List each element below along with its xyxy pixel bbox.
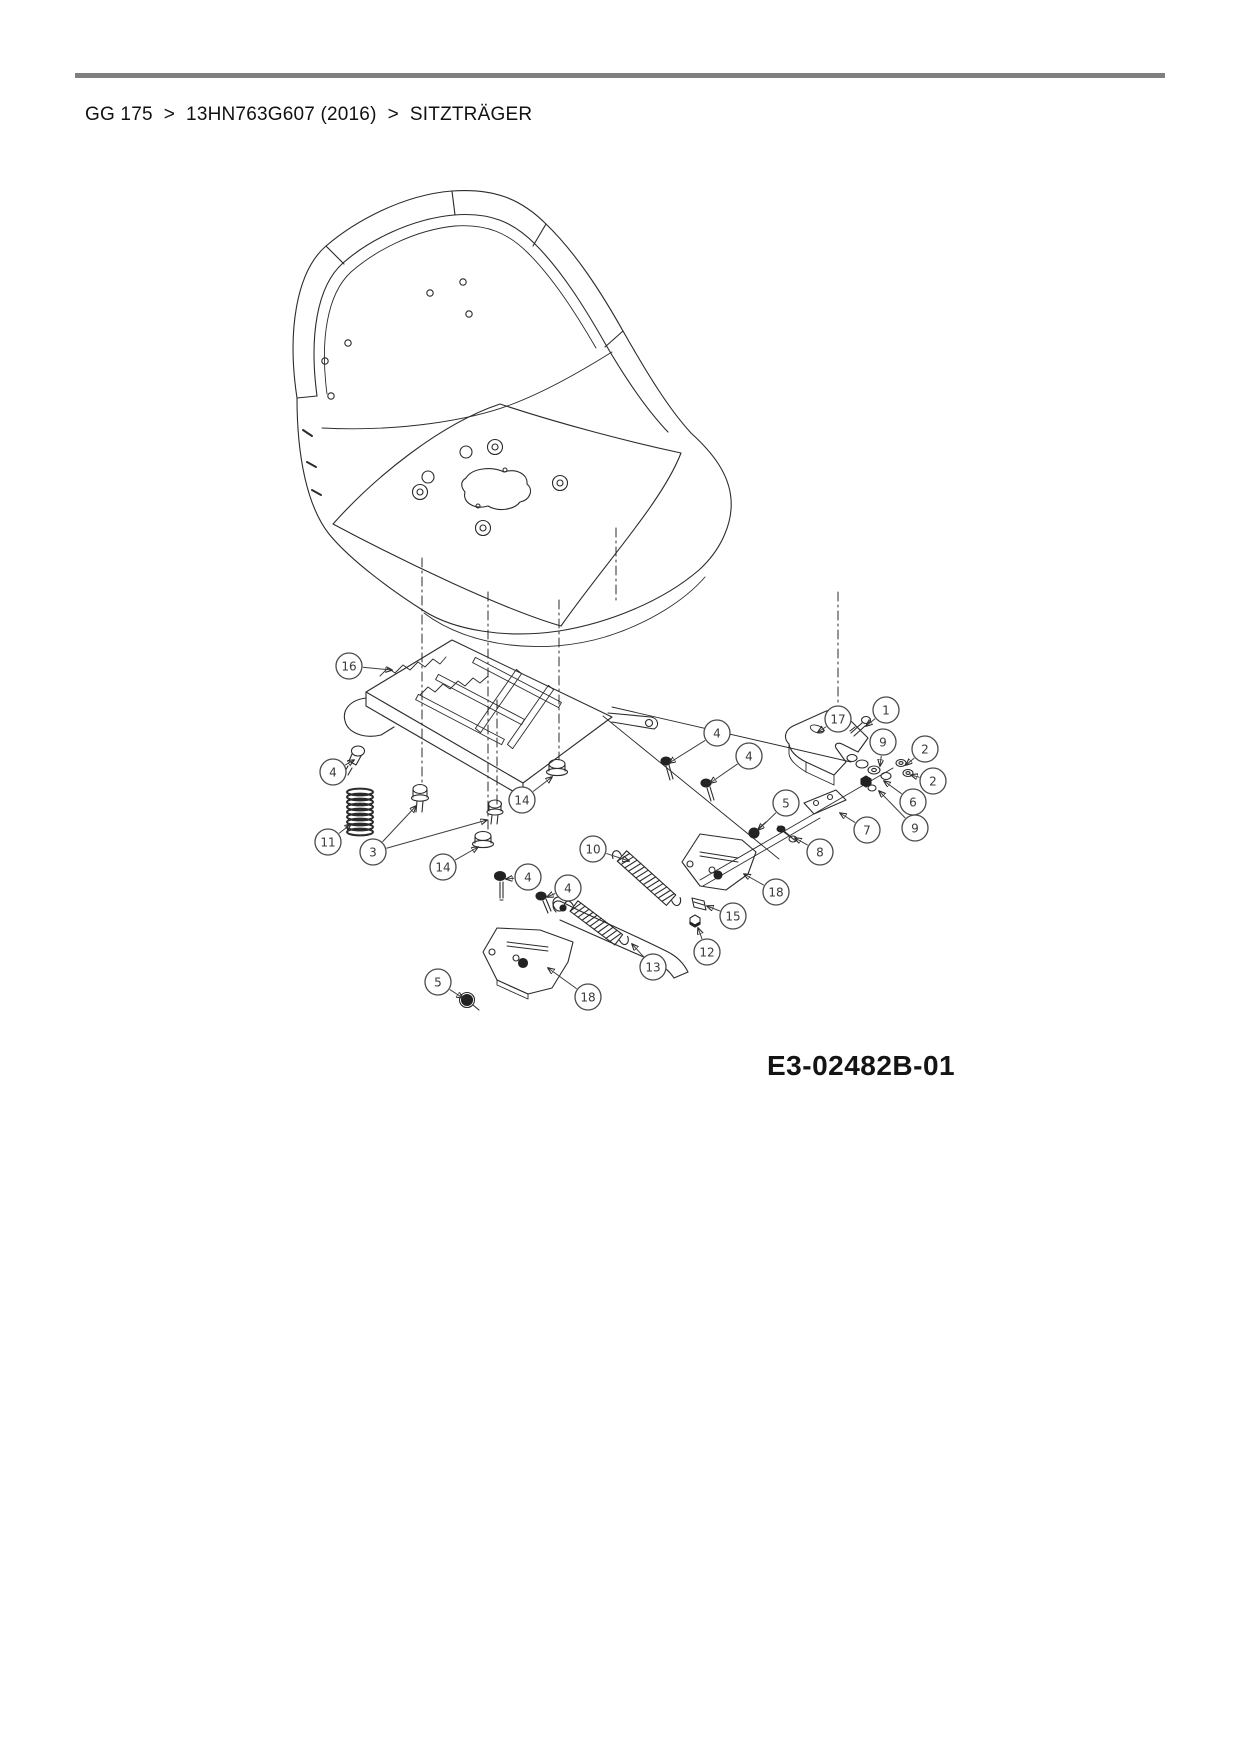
callout-5: 5	[425, 969, 463, 998]
callout-4: 4	[710, 743, 762, 783]
callout-17: 17	[818, 706, 851, 732]
callout-4: 4	[669, 720, 730, 763]
callout-14: 14	[430, 847, 478, 880]
callout-leader-line	[911, 775, 919, 777]
callout-9: 9	[870, 729, 896, 766]
callout-leader-line	[506, 878, 514, 879]
callout-number: 11	[320, 836, 335, 850]
callout-14: 14	[509, 777, 552, 813]
callout-number: 14	[435, 861, 450, 875]
callout-4: 4	[547, 875, 581, 901]
callout-number: 13	[645, 961, 660, 975]
callout-2: 2	[906, 736, 938, 765]
callout-4: 4	[320, 759, 354, 785]
callout-number: 12	[699, 946, 714, 960]
callout-leader-line	[880, 756, 881, 766]
callout-10: 10	[580, 836, 629, 862]
callout-leader-line	[818, 727, 826, 732]
callout-number: 14	[514, 794, 529, 808]
callout-leader-line	[386, 820, 487, 848]
callout-1: 1	[866, 697, 899, 726]
callout-leader-line	[884, 781, 902, 794]
callout-leader-line	[906, 758, 914, 765]
callout-number: 4	[564, 882, 572, 896]
callout-number: 10	[585, 843, 600, 857]
callout-leader-line	[758, 813, 776, 830]
callout-number: 4	[745, 750, 753, 764]
callout-12: 12	[694, 928, 720, 965]
callout-number: 18	[768, 886, 783, 900]
callout-leader-line	[795, 838, 808, 845]
callout-5: 5	[758, 790, 799, 830]
callout-number: 2	[921, 743, 929, 757]
callout-number: 4	[329, 766, 337, 780]
callout-number: 4	[524, 871, 532, 885]
callout-leader-line	[345, 760, 354, 765]
callout-4: 4	[506, 864, 541, 890]
callout-number: 18	[580, 991, 595, 1005]
callout-number: 9	[911, 822, 919, 836]
callout-number: 3	[369, 846, 377, 860]
callout-number: 17	[830, 713, 845, 727]
callout-8: 8	[795, 838, 833, 865]
callout-leader-line	[383, 806, 416, 842]
callout-18: 18	[548, 968, 601, 1010]
callout-leader-line	[363, 667, 392, 670]
callout-leader-line	[744, 874, 764, 885]
callout-16: 16	[336, 653, 392, 679]
callout-leader-line	[548, 968, 577, 989]
callout-leader-line	[455, 847, 478, 860]
callout-number: 1	[882, 704, 890, 718]
callout-number: 8	[816, 846, 824, 860]
callout-leader-line	[450, 990, 463, 998]
callout-number: 9	[879, 736, 887, 750]
callout-leader-line	[710, 764, 737, 783]
callout-leader-line	[606, 853, 629, 861]
parts-catalog-page: GG 175>13HN763G607 (2016)>SITZTRÄGER	[0, 0, 1240, 1754]
callout-number: 4	[713, 727, 721, 741]
callout-number: 16	[341, 660, 356, 674]
drawing-number-label: E3-02482B-01	[767, 1050, 955, 1082]
callout-13: 13	[632, 944, 666, 980]
callout-number: 5	[434, 976, 442, 990]
callout-number: 7	[863, 824, 871, 838]
callout-6: 6	[884, 781, 926, 815]
callout-leader-line	[707, 906, 720, 911]
callout-layer: 16411314141044518131215188796229117445	[0, 0, 1240, 1754]
callout-leader-line	[840, 813, 855, 823]
callout-number: 5	[782, 797, 790, 811]
callout-15: 15	[707, 903, 746, 929]
callout-leader-line	[698, 928, 702, 939]
callout-leader-line	[866, 719, 875, 726]
callout-leader-line	[632, 944, 644, 957]
callout-7: 7	[840, 813, 880, 843]
callout-leader-line	[533, 777, 552, 791]
callout-11: 11	[315, 824, 351, 855]
callout-leader-line	[339, 824, 351, 833]
callout-leader-line	[547, 894, 555, 897]
callout-number: 15	[725, 910, 740, 924]
callout-3: 3	[360, 806, 487, 865]
callout-leader-line	[669, 740, 705, 763]
callout-number: 6	[909, 796, 917, 810]
callout-18: 18	[744, 874, 789, 905]
callout-number: 2	[929, 775, 937, 789]
